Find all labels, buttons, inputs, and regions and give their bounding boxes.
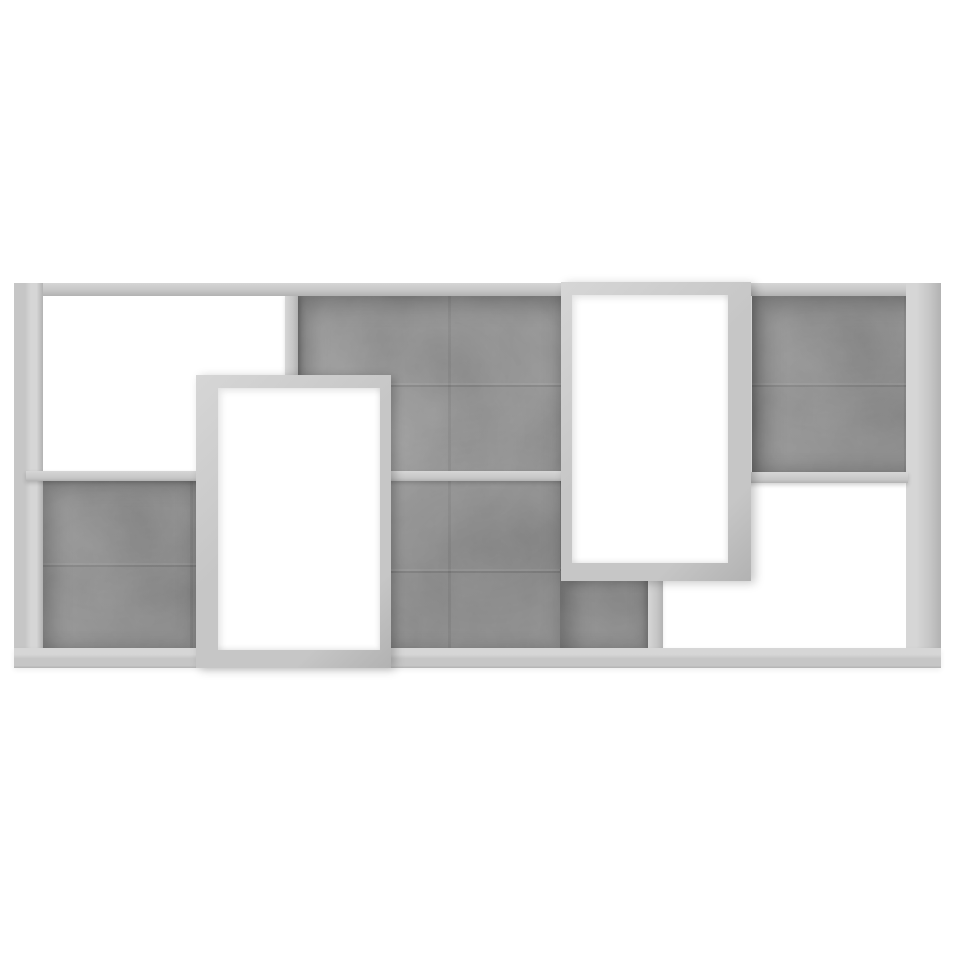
concrete-texture-overlay	[38, 474, 198, 652]
frame-right-board	[906, 283, 941, 668]
shelf-board-left	[26, 471, 202, 481]
protruding-box-left-interior	[218, 388, 380, 650]
protruding-box-left	[196, 375, 391, 668]
wall-shelf-unit	[0, 0, 955, 955]
frame-bottom-board	[14, 648, 941, 668]
frame-top-board	[14, 283, 941, 296]
protruding-box-right	[561, 282, 751, 581]
shelf-board-right	[748, 472, 908, 483]
shelf-board-center	[388, 471, 568, 481]
back-panel-top-right	[752, 294, 926, 474]
product-photo	[0, 0, 955, 955]
divider-wall-center-top	[285, 296, 298, 377]
concrete-texture-overlay	[752, 294, 926, 474]
protruding-box-right-interior	[572, 295, 728, 563]
back-panel-bottom-left	[38, 474, 198, 652]
